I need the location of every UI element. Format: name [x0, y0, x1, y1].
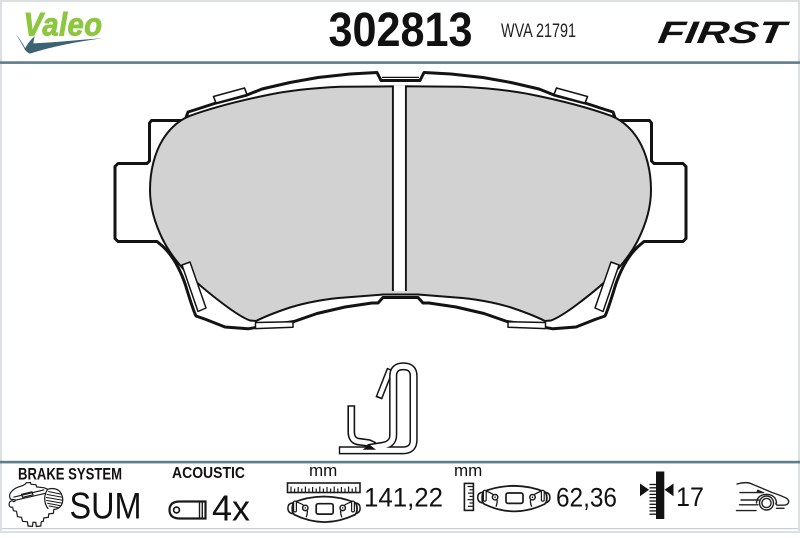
svg-text:SUM: SUM: [70, 486, 142, 527]
svg-text:62,36: 62,36: [556, 483, 617, 513]
svg-text:Valeo: Valeo: [24, 6, 103, 42]
svg-text:302813: 302813: [329, 3, 473, 57]
svg-text:17: 17: [676, 482, 704, 512]
svg-text:4x: 4x: [212, 488, 250, 529]
svg-text:WVA 21791: WVA 21791: [501, 21, 576, 42]
svg-text:141,22: 141,22: [364, 483, 443, 513]
svg-text:mm: mm: [454, 461, 482, 480]
svg-text:mm: mm: [309, 461, 337, 480]
svg-text:BRAKE SYSTEM: BRAKE SYSTEM: [18, 465, 122, 484]
svg-text:ACOUSTIC: ACOUSTIC: [172, 465, 245, 482]
svg-text:FIRST: FIRST: [656, 15, 792, 50]
